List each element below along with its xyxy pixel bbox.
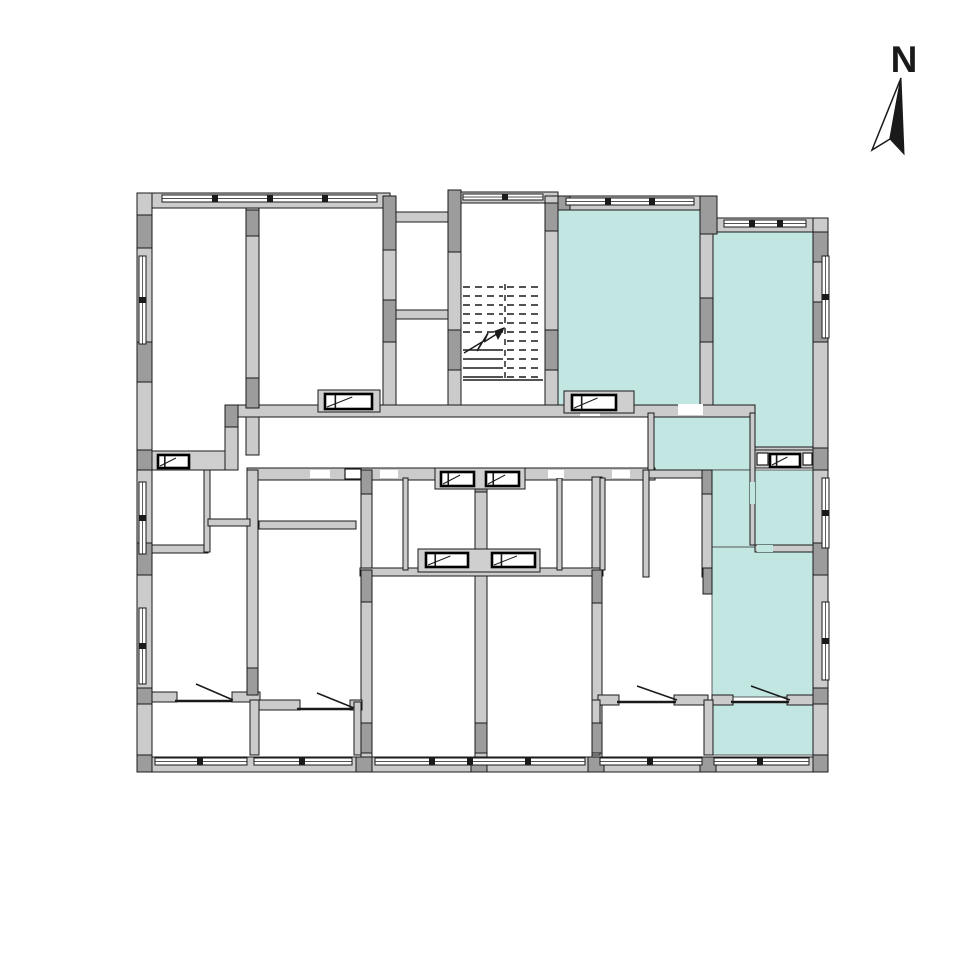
north-arrow: N: [872, 39, 917, 154]
stairwell: [463, 284, 543, 380]
floor-plan: N: [0, 0, 960, 960]
north-label: N: [891, 39, 918, 80]
floorplan-page: N: [0, 0, 960, 960]
